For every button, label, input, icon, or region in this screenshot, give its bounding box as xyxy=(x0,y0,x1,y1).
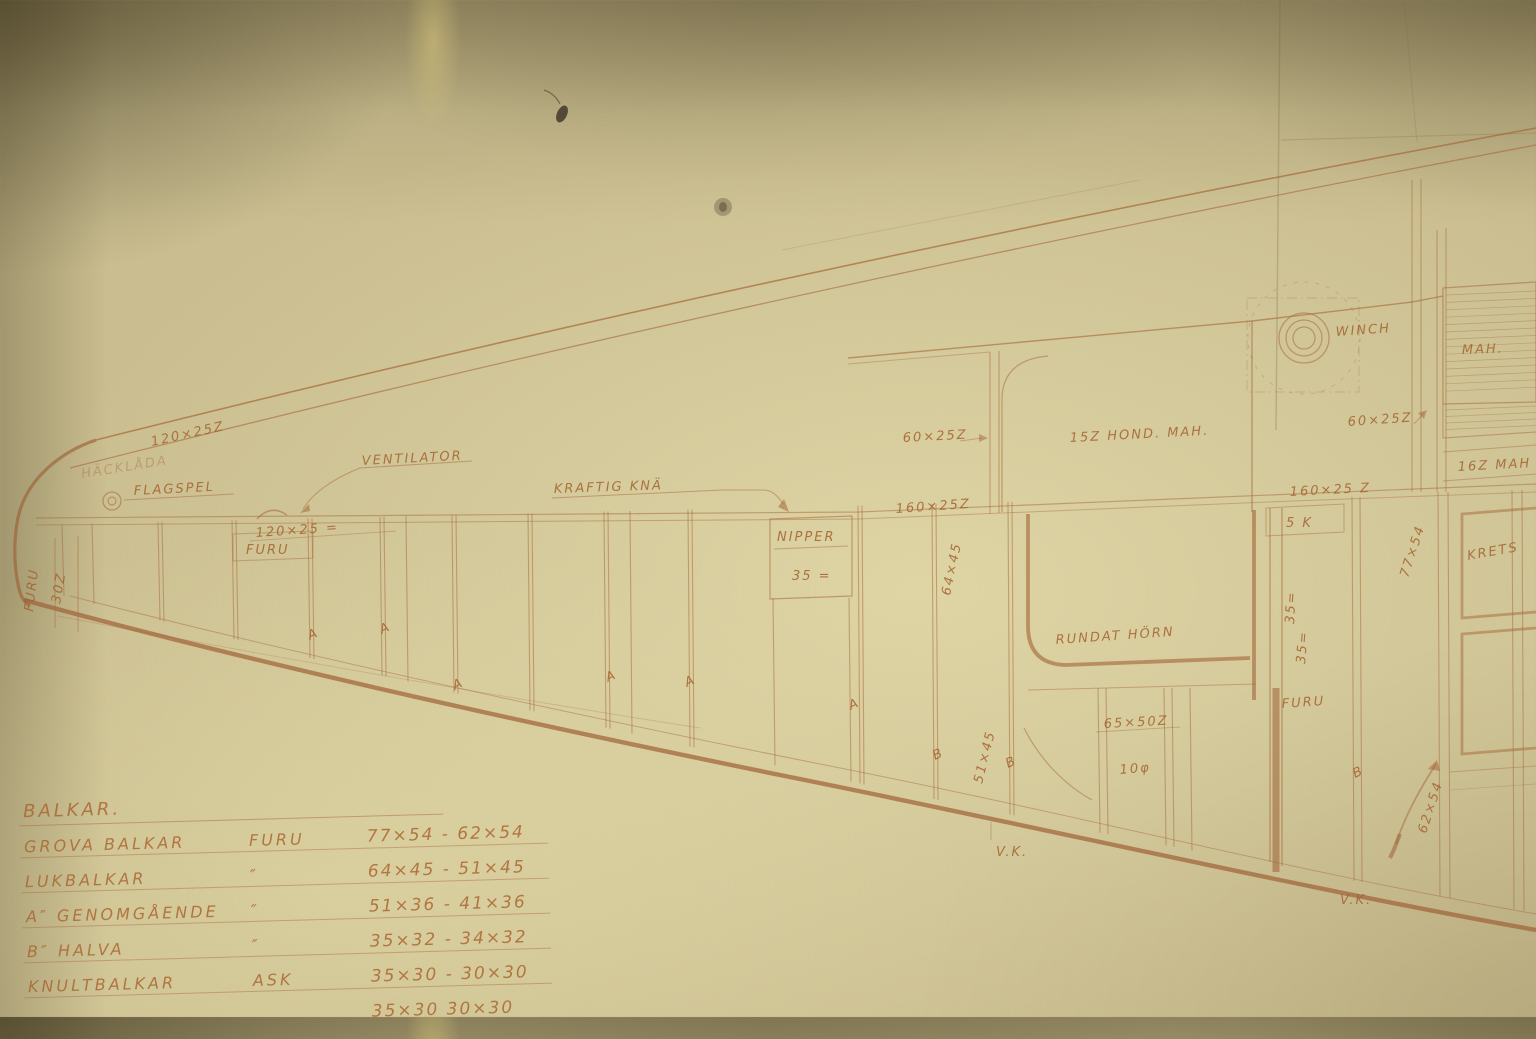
deck-line-lower xyxy=(70,145,1536,468)
row-name: B″ HALVA xyxy=(27,936,252,961)
mah-label: MAH. xyxy=(1462,342,1505,358)
heavy-beam xyxy=(1266,504,1344,872)
hatch-line xyxy=(1446,380,1536,384)
hatch-line xyxy=(1446,328,1536,332)
row-name xyxy=(29,1025,254,1031)
vk-right-label: V.K. xyxy=(1340,893,1372,908)
hatch-line xyxy=(1446,419,1536,423)
frame-line xyxy=(773,598,775,765)
frame-line xyxy=(1360,497,1362,882)
dim-35-upper-label: 35= xyxy=(1283,590,1300,624)
mahogany-hatched-panels xyxy=(1443,282,1536,481)
furu-box-label: FURU xyxy=(246,543,290,558)
frame-line xyxy=(849,598,851,782)
row-name: KNULTBALKAR xyxy=(28,971,253,996)
dim-16-mah-label: 16Z MAH xyxy=(1457,456,1531,475)
frame-letter: A xyxy=(304,625,321,644)
ventilator-label: VENTILATOR xyxy=(361,449,463,469)
frame-line xyxy=(608,512,610,729)
hatch-line xyxy=(1446,365,1536,369)
frame-line xyxy=(92,524,94,604)
frame-line xyxy=(1352,497,1354,881)
paper-creases xyxy=(782,0,1536,430)
row-name: GROVA BALKAR xyxy=(24,831,249,856)
frame-line xyxy=(1172,688,1174,847)
hatch-line xyxy=(1446,298,1536,302)
frame-line xyxy=(1522,490,1524,911)
frame-line xyxy=(384,517,386,677)
frame-line xyxy=(858,506,860,784)
rounded-panel-corner xyxy=(1002,356,1048,512)
frame-line xyxy=(380,517,382,676)
nipper-dim-label: 35 = xyxy=(792,569,832,584)
frame-line xyxy=(162,522,164,622)
dim-5k-label: 5 K xyxy=(1286,516,1313,531)
row-dims: 35×32 - 34×32 xyxy=(370,927,547,952)
frame-letter: B xyxy=(1003,753,1019,771)
balkar-table: BALKAR. GROVA BALKAR FURU 77×54 - 62×54 … xyxy=(19,787,553,1039)
row-material: ″ xyxy=(252,933,370,955)
hatch-line xyxy=(1446,306,1536,310)
tip-dim-label: 30Z xyxy=(49,571,69,605)
hatch-line xyxy=(1446,387,1536,391)
frame-line xyxy=(1106,688,1108,834)
row-name: A″ GENOMGÅENDE xyxy=(26,901,251,926)
frame-letter: A xyxy=(449,675,466,694)
frame-line xyxy=(688,510,690,747)
rounded-corner-box xyxy=(1024,510,1256,800)
hatch-line xyxy=(1446,372,1536,376)
dim-60x25-right-label: 60×25Z xyxy=(1347,411,1413,430)
row-dims: 64×45 - 51×45 xyxy=(368,857,545,882)
dim-160x25-right-label: 160×25 Z xyxy=(1289,481,1371,500)
winch-label: WINCH xyxy=(1335,321,1391,340)
bow-details xyxy=(55,492,396,632)
frame-line xyxy=(1438,492,1440,896)
hatch-line xyxy=(1446,321,1536,325)
furu-right-label: FURU xyxy=(1281,694,1325,712)
row-dims: 35×30 - 30×30 xyxy=(371,962,548,987)
dim-35-lower-label: 35= xyxy=(1294,630,1312,665)
frame-line xyxy=(1190,688,1192,850)
row-dims: 77×54 - 62×54 xyxy=(367,822,544,847)
deck-line-upper xyxy=(96,128,1536,440)
frame-line xyxy=(630,511,632,734)
row-material: ″ xyxy=(250,863,368,885)
hatch-line xyxy=(1446,406,1536,410)
rundat-horn-label: RUNDAT HÖRN xyxy=(1055,623,1175,648)
deckhouse-structure xyxy=(848,179,1446,514)
frame-line xyxy=(456,515,458,693)
ink-smudge xyxy=(544,90,732,216)
hatch-line xyxy=(1446,335,1536,339)
panel-mah-15-label: 15Z HOND. MAH. xyxy=(1069,424,1209,446)
row-material: ″ xyxy=(251,898,369,920)
frame-line xyxy=(532,513,534,711)
frame-line xyxy=(1098,688,1100,833)
frame-line xyxy=(528,513,530,710)
frame-line xyxy=(1164,688,1166,845)
nipper-label: NIPPER xyxy=(777,530,835,545)
dim-60x25-left-label: 60×25Z xyxy=(902,428,968,446)
frame-line xyxy=(692,510,694,748)
dim-77x54-label: 77×54 xyxy=(1398,523,1429,579)
vk-left-label: V.K. xyxy=(996,845,1028,860)
row-dims: 51×36 - 41×36 xyxy=(369,892,546,917)
row-dims: 35×30 30×30 xyxy=(372,997,549,1022)
vent-arc-icon xyxy=(257,510,287,519)
nipper-box xyxy=(770,516,852,599)
frame-letter: A xyxy=(602,667,619,686)
row-name: LUKBALKAR xyxy=(25,866,250,891)
frame-line xyxy=(406,516,408,681)
dim-65x50-label: 65×50Z xyxy=(1103,714,1169,732)
dim-64x45-label: 64×45 xyxy=(939,541,965,597)
row-material: FURU xyxy=(249,828,367,850)
blueprint-page: { "colors": { "paper": "#cabe90", "ink":… xyxy=(0,0,1536,1017)
frame-line xyxy=(452,515,454,692)
frame-line xyxy=(158,522,160,620)
ventilator-callout xyxy=(257,461,472,519)
dim-160x25-left-label: 160×25Z xyxy=(895,497,971,517)
hatch-line xyxy=(1446,426,1536,430)
frame-line xyxy=(236,520,238,640)
frame-letter: B xyxy=(930,745,946,763)
row-material: ASK xyxy=(253,968,371,990)
frame-letter: B xyxy=(1350,763,1366,781)
flagpole-socket-icon xyxy=(103,492,121,510)
row-material xyxy=(254,1022,372,1025)
stern-note-label: HÄCKLÅDA xyxy=(80,452,169,481)
frame-letter: A xyxy=(681,672,698,691)
frame-letter: A xyxy=(376,619,393,638)
hatch-line xyxy=(1446,291,1536,295)
dim-10-label: 10φ xyxy=(1119,760,1151,778)
table-row-partial: 35×30 30×30 xyxy=(24,991,553,1033)
frame-line xyxy=(604,512,606,728)
frame-line xyxy=(1448,492,1450,898)
frame-line xyxy=(862,506,864,785)
hatch-line xyxy=(1446,413,1536,417)
hatch-line xyxy=(1446,358,1536,362)
dim-51x45-label: 51×45 xyxy=(971,729,999,785)
dim-62x54-label: 62×54 xyxy=(1416,779,1447,835)
hatch-line xyxy=(1446,313,1536,317)
